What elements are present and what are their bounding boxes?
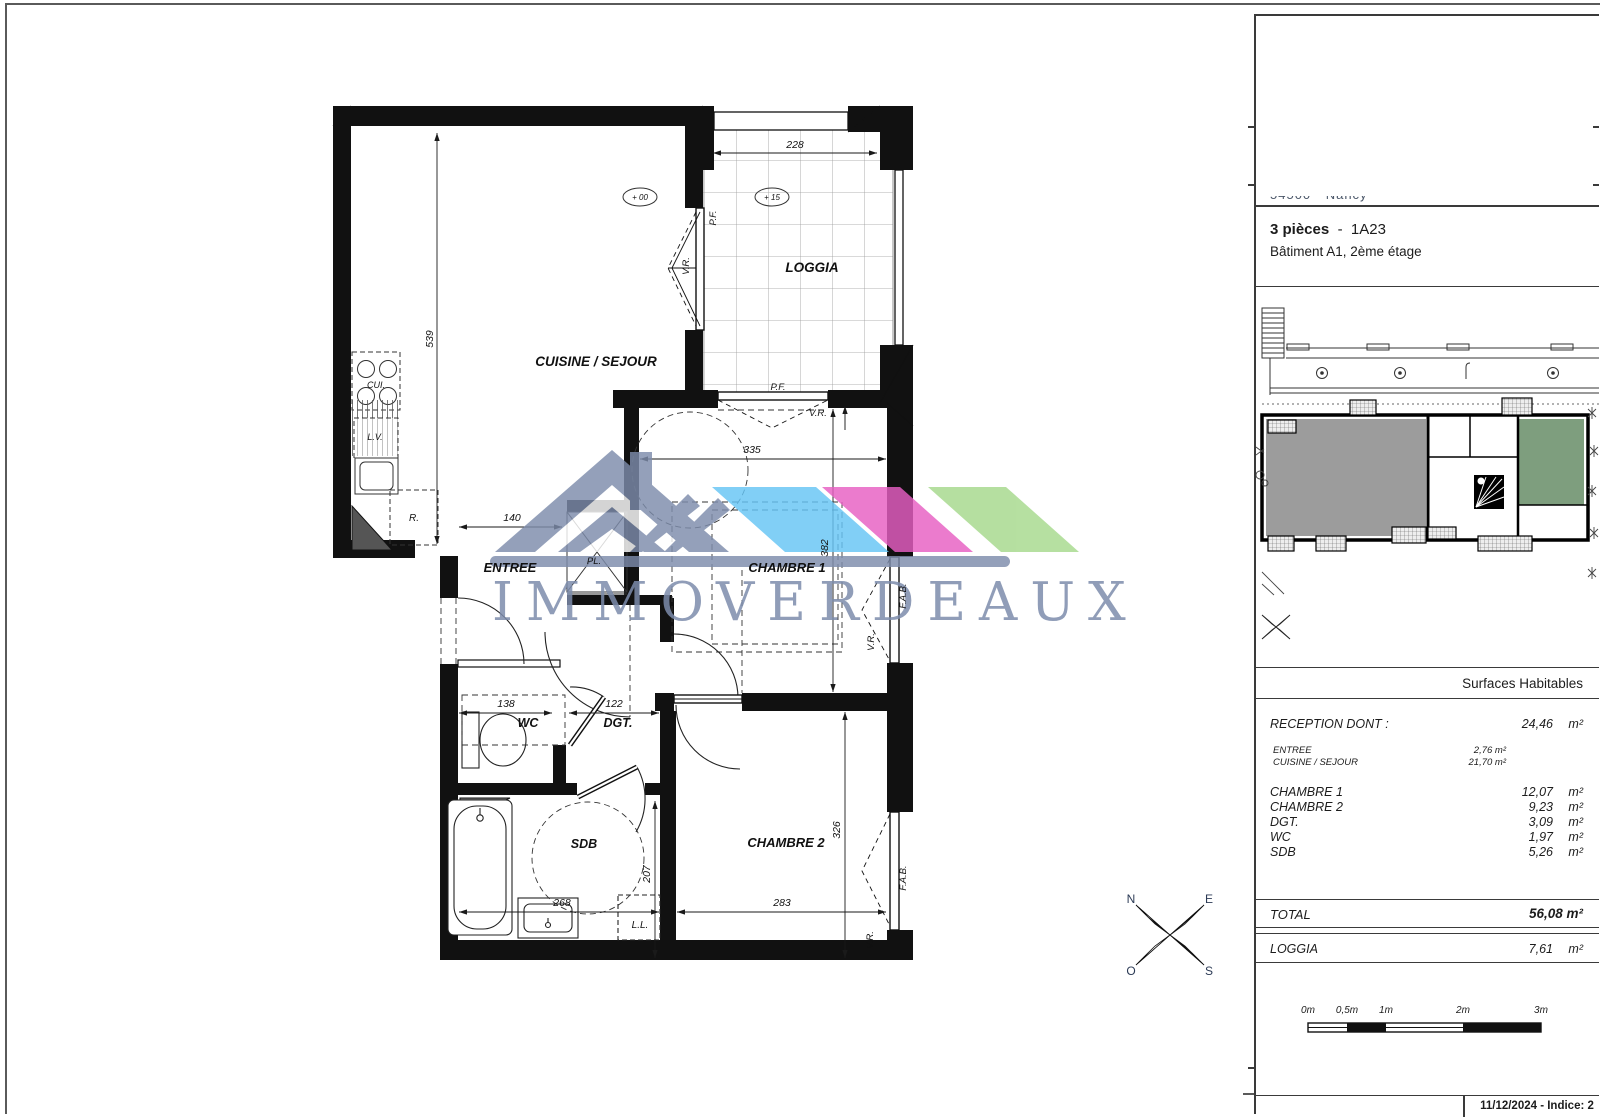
scale-label-3: 3m [1534,1005,1548,1016]
room-label-cuisine: CUISINE / SEJOUR [535,354,657,369]
logo-chimney [630,452,652,510]
bathtub [448,800,512,935]
label-washing-machine: L.L. [632,920,649,931]
total-row: TOTAL 56,08 m² [1256,900,1599,928]
level-marker-main: + 00 [632,193,648,202]
label-vr-kitchen: V.R. [681,257,692,275]
border-tick [1248,1067,1256,1069]
total-value: 56,08 m² [1529,906,1583,921]
dim-207: 207 [641,864,653,884]
toilet-tank [462,712,479,768]
dim-335: 335 [743,444,761,456]
border-tick [1248,126,1256,128]
level-marker-loggia: + 15 [764,193,780,202]
site-road [1262,308,1599,404]
loggia-value: 7,61 [1529,942,1553,956]
room-label-dgt: DGT. [604,716,633,730]
border-tick [1248,184,1256,186]
site-stair-core [1474,475,1504,509]
scale-label-1: 1m [1379,1005,1393,1016]
watermark-text: IMMOVERDEAUX [492,572,1139,633]
loggia-railing-right [895,170,903,345]
dim-138: 138 [497,698,515,710]
label-pf-chambre1: P.F. [771,382,786,393]
unit-id: 1A23 [1351,221,1386,238]
unit-type: 3 pièces [1270,221,1329,238]
door-arc-chambre2 [676,705,740,769]
scale-label-0: 0m [1301,1005,1315,1016]
watermark-logo [490,450,1079,567]
label-pf-kitchen: P.F. [708,211,719,226]
unit-location: Bâtiment A1, 2ème étage [1270,244,1599,259]
label-vr-chambre2: V.R. [865,931,876,949]
room-label-wc: WC [518,716,540,730]
compass-n: N [1127,892,1136,906]
washing-machine [618,895,660,940]
project-address-clipped: 54500 - Nancy [1270,196,1470,203]
unit-identification: 3 pièces - 1A23 Bâtiment A1, 2ème étage [1256,207,1599,287]
total-label: TOTAL [1270,907,1311,922]
partitions [458,660,560,667]
dim-283: 283 [772,897,791,909]
label-fab-chambre1: F.A.B. [898,583,909,608]
loggia-label: LOGGIA [1270,942,1318,956]
floor-plan: IMMOVERDEAUX CUISINE / SEJOUR LOGGIA ENT… [0,0,1254,1114]
room-label-entree: ENTREE [484,560,537,575]
dim-122: 122 [605,698,623,710]
street-lamp-icon [1466,363,1470,379]
door-arc-sdb [636,767,645,832]
site-plan-section [1256,287,1599,668]
surfaces-header: Surfaces Habitables [1256,668,1599,699]
turning-circle-sdb [532,802,644,914]
dim-539: 539 [424,330,436,348]
door-arc-chambre1 [674,634,738,698]
dim-382: 382 [819,539,831,557]
title-block: 54500 - Nancy 3 pièces - 1A23 Bâtiment A… [1254,14,1599,1114]
dim-228: 228 [785,139,804,151]
border-tick [1593,126,1599,128]
duct-kitchen [352,506,392,550]
label-cooktop: CUI. [367,380,385,390]
site-unit-gray [1266,419,1426,536]
label-vr-chambre1-top: V.R. [809,408,827,419]
unit-separator: - [1338,221,1343,238]
dim-268: 268 [552,897,571,909]
label-fridge: R. [409,513,419,524]
scale-label-05: 0,5m [1336,1005,1358,1016]
loggia-railing-top [714,112,848,130]
page: { "watermark": {"text": "IMMOVERDEAUX"},… [0,0,1600,1114]
room-label-chambre1: CHAMBRE 1 [748,560,825,575]
site-compass-icon [1262,615,1290,639]
label-pl: PL. [587,556,601,567]
site-plan-map [1256,287,1599,667]
kitchen-fixtures [352,352,438,550]
scale-label-2: 2m [1456,1005,1470,1016]
compass-s: S [1205,964,1213,978]
label-fab-chambre2: F.A.B. [898,865,909,890]
dim-140: 140 [503,512,521,524]
scale-bar-section: 0m 0,5m 1m 2m 3m [1256,963,1599,1089]
title-block-header: 54500 - Nancy [1256,16,1599,207]
window-pf-chambre1 [718,392,828,400]
label-dishwasher: L.V. [367,432,382,442]
dim-326: 326 [831,821,843,839]
unit-title: 3 pièces - 1A23 [1270,221,1599,238]
room-label-chambre2: CHAMBRE 2 [747,835,825,850]
door-arc-wc [570,687,604,697]
loggia-row: LOGGIA 7,61 m² [1256,933,1599,963]
label-vr-chambre1: V.R. [866,633,877,651]
site-building [1262,398,1588,551]
revision-date: 11/12/2024 - Indice: 2 [1478,1100,1596,1112]
room-label-loggia: LOGGIA [785,260,838,275]
surfaces-title: Surfaces Habitables [1462,676,1583,691]
window-pf-kitchen [696,208,704,330]
compass-o: O [1126,964,1135,978]
surfaces-table: RECEPTION DONT : 24,46 m² ENTREE 2,76 m²… [1256,699,1599,900]
site-unit-highlight-green [1518,419,1584,505]
compass-e: E [1205,892,1213,906]
compass-rose: N E O S [1126,892,1213,978]
border-tick [1593,184,1599,186]
room-label-sdb: SDB [571,837,597,851]
scale-bar [1298,1021,1558,1037]
